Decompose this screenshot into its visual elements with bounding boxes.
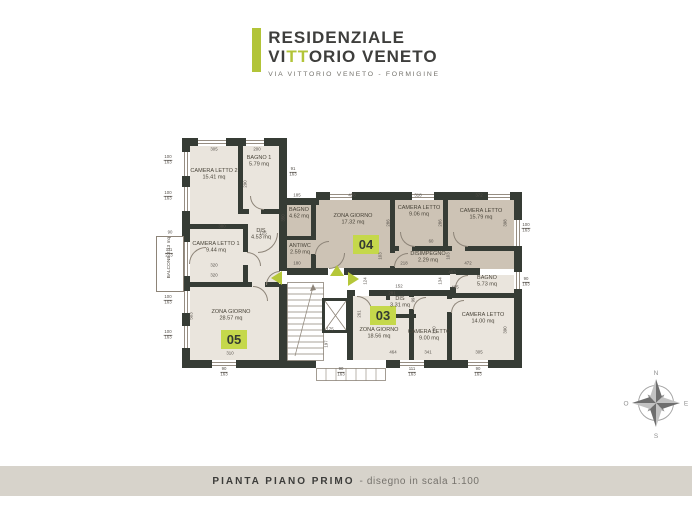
apartment-badge-05: 05 [221, 330, 247, 349]
room-label: ZONA GIORNO17.32 mq [334, 213, 373, 226]
partition-wall [311, 199, 316, 268]
room-label: CAMERA LETTO 19.44 mq [192, 241, 239, 254]
footer-title: PIANTA PIANO PRIMO [212, 476, 354, 487]
room-label: CAMERA LETTO15.79 mq [460, 208, 503, 221]
door-opening [249, 209, 261, 214]
compass-south-label: S [654, 433, 659, 440]
compass-east-label: E [684, 401, 689, 408]
footer-band: PIANTA PIANO PRIMO - disegno in scala 1:… [0, 466, 692, 496]
dimension-label: 380 [218, 225, 225, 230]
dimension-label: 100163 [164, 330, 173, 340]
dimension-label: 180 [293, 262, 300, 267]
entry-arrow-apartment-05-icon [271, 271, 282, 285]
window [488, 192, 510, 200]
wall [447, 293, 514, 298]
dimension-label: 286 [387, 219, 392, 226]
dimension-label: 438 [348, 194, 355, 199]
dimension-label: 124 [364, 277, 369, 284]
dimension-label: 320 [210, 264, 217, 269]
wall [279, 138, 287, 368]
room-label: ANTIWC2.59 mq [289, 243, 311, 256]
dimension-label: 305 [475, 351, 482, 356]
dimension-label: 103 [447, 252, 452, 259]
partition-wall [187, 224, 243, 229]
partition-wall [443, 199, 448, 251]
dimension-label: 111223 [165, 248, 173, 258]
dimension-label: 398 [504, 219, 509, 226]
dimension-label: 310 [226, 352, 233, 357]
room-label: CAMERA LETTO9.06 mq [398, 205, 441, 218]
dimension-label: 372 [475, 194, 482, 199]
dimension-label: 100163 [164, 295, 173, 305]
window [514, 272, 522, 289]
compass-north-label: N [654, 370, 659, 377]
dimension-label: 390 [504, 326, 509, 333]
dimension-label: 125 [259, 232, 266, 237]
staircase [287, 282, 324, 361]
compass-west-label: O [623, 401, 628, 408]
entry-arrow-apartment-03-icon [348, 272, 359, 286]
door-opening [452, 246, 465, 251]
dimension-label: 503 [190, 312, 195, 319]
dimension-label: 280 [433, 326, 438, 333]
dimension-label: 290 [244, 180, 249, 187]
door-opening [399, 246, 412, 251]
dimension-label: 111163 [408, 367, 416, 377]
dimension-label: 472 [464, 262, 471, 267]
dimension-label: 91163 [289, 167, 296, 177]
room-label: CAMERA LETTO14.00 mq [462, 312, 505, 325]
dimension-label: 60 [429, 240, 434, 245]
dimension-label: 218 [400, 262, 407, 267]
window [182, 326, 190, 348]
dimension-label: 185 [293, 194, 300, 199]
wall [182, 360, 316, 368]
window [182, 291, 190, 313]
dimension-label: 99 [412, 298, 417, 303]
flyer-page: RESIDENZIALE VITTORIO VENETO VIA VITTORI… [0, 0, 692, 518]
dimension-label: 134 [439, 277, 444, 284]
dimension-label: 90 [168, 231, 173, 236]
room-label: CAMERA LETTO 215.41 mq [190, 168, 237, 181]
window [198, 138, 226, 146]
dimension-label: 200 [253, 148, 260, 153]
dimension-label: 100163 [164, 155, 173, 165]
dimension-label: 103 [379, 252, 384, 259]
room-label: BAGNO4.62 mq [289, 207, 309, 220]
dimension-label: 100163 [164, 191, 173, 201]
dimension-label: 100163 [522, 223, 531, 233]
dimension-label: 320 [210, 274, 217, 279]
floor-plan: BALCONE 2.13 mq [0, 0, 692, 518]
dimension-label: 350 [282, 214, 287, 221]
dimension-label: 341 [424, 351, 431, 356]
window [246, 138, 264, 146]
room-label: DISIMPEGNO2.29 mq [410, 251, 445, 264]
room-label: BAGNO5.73 mq [477, 275, 497, 288]
dimension-label: 465 [451, 286, 458, 291]
window [182, 152, 190, 176]
dimension-label: 90163 [220, 367, 227, 377]
room-label: ZONA GIORNO28.57 mq [212, 309, 251, 322]
dimension-label: 286 [439, 219, 444, 226]
dimension-label: 152 [395, 285, 402, 290]
partition-wall [238, 146, 243, 214]
dimension-label: 318 [414, 194, 421, 199]
room-label: BAGNO 15.79 mq [247, 155, 272, 168]
dimension-label: 281 [388, 292, 395, 297]
dimension-label: 90163 [337, 367, 344, 377]
dimension-label: 464 [389, 351, 396, 356]
dimension-label: 90163 [474, 367, 481, 377]
window [182, 187, 190, 211]
dimension-label: 305 [210, 148, 217, 153]
dimension-label: 261 [358, 310, 363, 317]
balcony-name: BALCONE [167, 255, 172, 278]
room-label: CAMERA LETTO9.00 mq [408, 329, 451, 342]
dimension-label: 175 [326, 328, 333, 333]
room-label: ZONA GIORNO18.56 mq [360, 327, 399, 340]
entry-arrow-apartment-04-icon [330, 265, 344, 276]
apartment-badge-04: 04 [353, 235, 379, 254]
room-label: DIS3.31 mq [390, 296, 410, 309]
compass-rose-icon: N S E O [622, 366, 690, 440]
footer-subtitle: - disegno in scala 1:100 [360, 476, 480, 487]
stair-landing [316, 368, 386, 381]
dimension-label: 90163 [522, 277, 529, 287]
dimension-label: 463 [448, 271, 455, 276]
dimension-label: 197 [325, 340, 330, 347]
